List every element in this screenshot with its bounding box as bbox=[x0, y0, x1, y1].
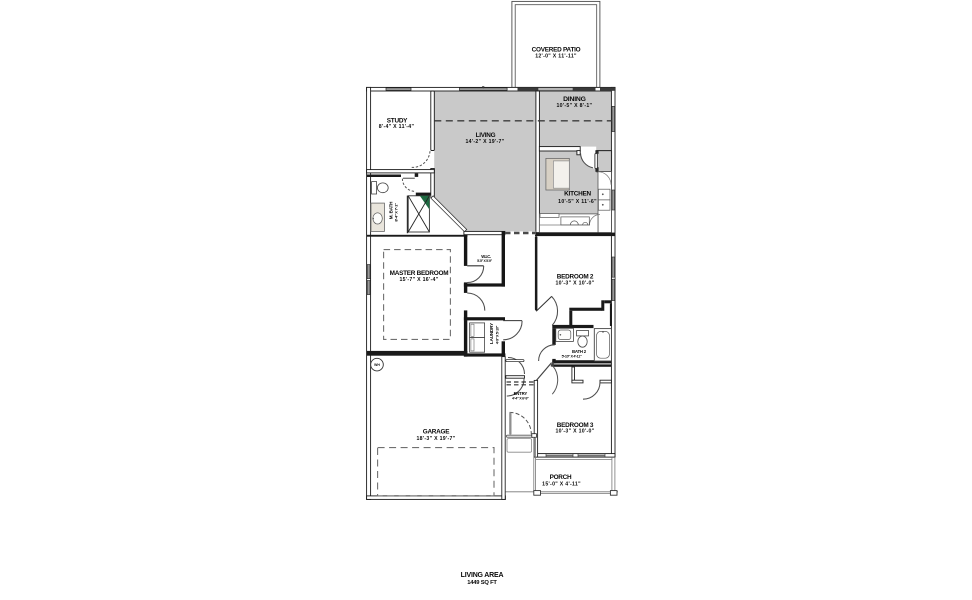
svg-text:DINING: DINING bbox=[563, 96, 586, 103]
svg-text:14'-2" X 19'-7": 14'-2" X 19'-7" bbox=[466, 139, 505, 145]
svg-text:18'-3" X 19'-7": 18'-3" X 19'-7" bbox=[417, 436, 456, 442]
svg-text:5'-10" X 4'-11": 5'-10" X 4'-11" bbox=[562, 355, 582, 359]
svg-text:8'-4" X 11'-4": 8'-4" X 11'-4" bbox=[379, 124, 415, 130]
svg-text:10'-5" X 8'-1": 10'-5" X 8'-1" bbox=[556, 103, 592, 109]
svg-text:WH: WH bbox=[374, 363, 380, 367]
svg-text:8'-4" X 7'-1": 8'-4" X 7'-1" bbox=[393, 203, 398, 222]
svg-text:4'-9" X 5'-10": 4'-9" X 5'-10" bbox=[495, 325, 499, 344]
svg-text:12'-0" X 11'-11": 12'-0" X 11'-11" bbox=[535, 54, 577, 60]
svg-text:KITCHEN: KITCHEN bbox=[564, 191, 591, 198]
svg-text:GARAGE: GARAGE bbox=[423, 429, 451, 436]
svg-text:5'-5" X 5'-9": 5'-5" X 5'-9" bbox=[477, 259, 493, 263]
svg-text:15'-0" X 4'-11": 15'-0" X 4'-11" bbox=[542, 481, 581, 487]
svg-text:15'-7" X 16'-4": 15'-7" X 16'-4" bbox=[400, 277, 439, 283]
svg-text:BEDROOM 2: BEDROOM 2 bbox=[557, 274, 594, 281]
svg-text:PORCH: PORCH bbox=[550, 474, 572, 481]
svg-text:10'-3" X 10'-0": 10'-3" X 10'-0" bbox=[556, 281, 595, 287]
svg-text:ENTRY: ENTRY bbox=[514, 391, 528, 396]
svg-text:4'-4" X 6'-9": 4'-4" X 6'-9" bbox=[512, 397, 529, 401]
svg-text:COVERED PATIO: COVERED PATIO bbox=[532, 47, 581, 54]
svg-text:MASTER BEDROOM: MASTER BEDROOM bbox=[390, 270, 449, 277]
svg-text:10'-5" X 11'-6": 10'-5" X 11'-6" bbox=[558, 199, 597, 205]
svg-text:10'-3" X 10'-0": 10'-3" X 10'-0" bbox=[556, 428, 595, 434]
svg-text:LAUNDRY: LAUNDRY bbox=[489, 323, 494, 344]
svg-text:BATH 2: BATH 2 bbox=[572, 349, 587, 354]
svg-text:1449 SQ FT: 1449 SQ FT bbox=[467, 580, 497, 586]
svg-text:LIVING AREA: LIVING AREA bbox=[461, 572, 504, 579]
